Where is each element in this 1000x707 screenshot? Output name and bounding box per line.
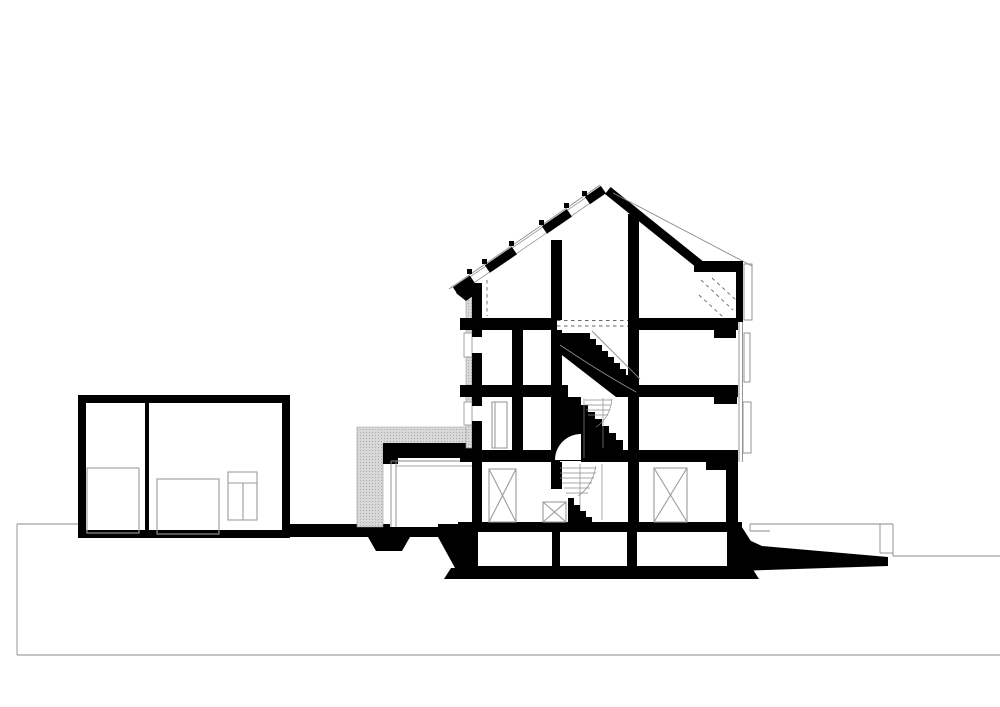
wardrobe-gf-right <box>654 468 687 522</box>
stair-wall-attic <box>551 240 562 320</box>
attic-slab-downstand <box>714 330 736 338</box>
left-window-frame-2 <box>464 402 472 425</box>
ridge-partition <box>628 214 639 320</box>
left-roof-band <box>455 190 603 291</box>
right-facade <box>739 322 751 462</box>
attic-slab-right <box>628 318 738 330</box>
partition-a-1f <box>512 393 523 451</box>
basement-room-1 <box>478 532 552 566</box>
basement-room-3 <box>637 532 727 566</box>
ramp-slab <box>737 535 888 571</box>
skylight-edge-ticks <box>467 191 587 274</box>
second-slab-downstand <box>714 397 737 404</box>
stair-wall-gf <box>551 462 562 489</box>
window1-head <box>472 333 482 337</box>
window2-sill <box>472 421 482 425</box>
basement <box>438 524 759 579</box>
left-window-frame-1 <box>464 333 472 357</box>
door-elevation-1f <box>492 402 507 448</box>
dormer-rail <box>744 264 752 320</box>
flight-2f-1f <box>581 405 623 462</box>
section-drawing <box>0 0 1000 707</box>
outbuilding <box>82 399 286 534</box>
roof <box>449 185 752 322</box>
basement-skirt <box>444 568 759 579</box>
window1-sill <box>472 353 482 357</box>
right-roof-band <box>608 191 700 265</box>
outbuilding-shell <box>82 399 286 534</box>
connector-room-lines <box>391 461 473 527</box>
partition-c-gf <box>628 462 639 523</box>
dormer-flat-roof <box>694 261 743 272</box>
dormer-glazing-dashes <box>699 278 736 317</box>
attic-slab-left <box>460 318 557 330</box>
ramp <box>737 524 893 571</box>
main-building <box>449 185 752 534</box>
balcony-rail-2f <box>744 333 750 382</box>
winder-steps-gf <box>560 466 596 496</box>
wardrobe-gf-left <box>489 469 516 522</box>
connector <box>357 427 480 527</box>
window2-head <box>472 402 482 406</box>
left-wall-lower <box>472 425 482 532</box>
first-slab-right <box>620 450 738 462</box>
basement-room-2 <box>560 532 627 566</box>
dormer-post <box>736 261 743 322</box>
right-wall-gf <box>726 462 738 524</box>
partition-a-2f <box>512 330 523 386</box>
partition-c-1f <box>628 397 639 451</box>
foundation-pad <box>368 537 410 551</box>
section-drawing-page <box>0 0 1000 707</box>
first-slab-left <box>460 450 560 462</box>
connector-hatch <box>357 427 467 527</box>
balcony-rail-1f <box>743 402 751 453</box>
duct-box <box>543 502 566 522</box>
